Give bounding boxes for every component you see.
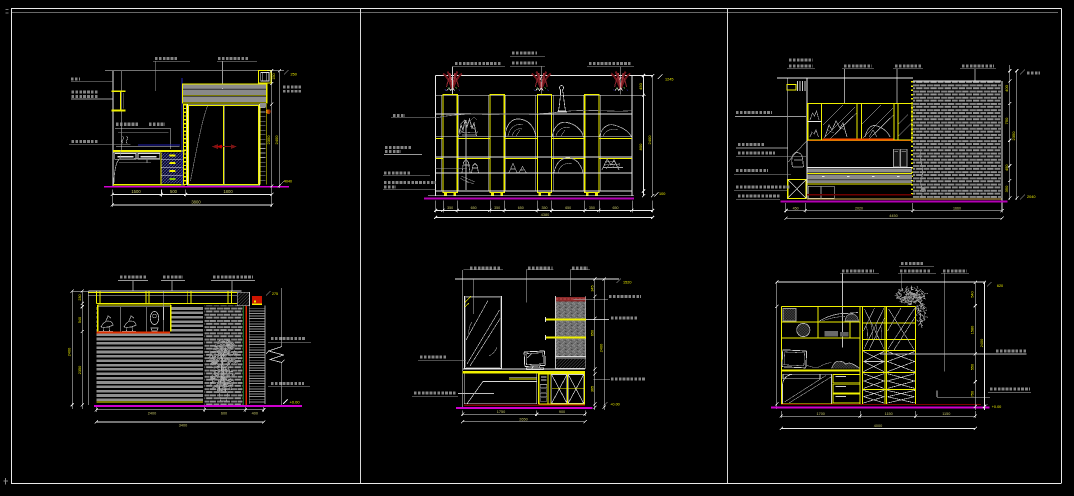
- svg-text:350: 350: [494, 206, 500, 210]
- svg-text:1150: 1150: [885, 412, 893, 416]
- svg-text:1520: 1520: [623, 281, 631, 285]
- svg-text:230: 230: [78, 294, 82, 300]
- svg-text:750: 750: [971, 391, 975, 397]
- svg-text:365: 365: [590, 386, 594, 392]
- svg-text:2350: 2350: [266, 135, 271, 145]
- svg-text:540: 540: [78, 317, 82, 323]
- svg-text:2400: 2400: [980, 339, 984, 347]
- svg-text:650: 650: [471, 206, 477, 210]
- svg-text:250: 250: [291, 73, 297, 77]
- svg-text:2400: 2400: [148, 412, 156, 416]
- svg-text:100: 100: [659, 192, 665, 196]
- svg-text:+0.00: +0.00: [289, 399, 300, 404]
- svg-text:400: 400: [1004, 84, 1009, 91]
- svg-text:2400: 2400: [274, 135, 279, 145]
- svg-text:+0.00: +0.00: [610, 403, 620, 407]
- svg-text:1150: 1150: [942, 412, 950, 416]
- svg-text:1660: 1660: [953, 206, 961, 210]
- svg-text:3400: 3400: [179, 424, 187, 428]
- svg-text:+0.00: +0.00: [992, 405, 1002, 409]
- svg-text:500: 500: [170, 189, 178, 194]
- svg-text:650: 650: [590, 330, 594, 336]
- svg-text:4380: 4380: [541, 213, 549, 217]
- svg-text:350: 350: [542, 206, 548, 210]
- svg-text:4040: 4040: [284, 180, 292, 184]
- svg-text:450: 450: [793, 206, 799, 210]
- svg-text:4000: 4000: [874, 424, 882, 428]
- svg-text:2350: 2350: [1011, 131, 1016, 141]
- svg-text:2400: 2400: [647, 135, 652, 145]
- svg-text:450: 450: [1004, 164, 1009, 171]
- svg-text:150: 150: [272, 73, 276, 79]
- svg-text:650: 650: [565, 206, 571, 210]
- svg-text:350: 350: [447, 206, 453, 210]
- svg-text:400: 400: [252, 412, 258, 416]
- svg-text:2020: 2020: [855, 206, 863, 210]
- svg-text:2350: 2350: [78, 366, 82, 374]
- svg-text:540: 540: [971, 291, 975, 297]
- svg-text:275: 275: [272, 292, 278, 296]
- svg-text:900: 900: [559, 410, 565, 414]
- svg-text:1245: 1245: [665, 78, 673, 82]
- svg-text:1750: 1750: [497, 410, 505, 414]
- svg-text:345: 345: [590, 285, 594, 291]
- svg-text:350: 350: [1004, 185, 1009, 192]
- svg-text:1500: 1500: [131, 189, 141, 194]
- svg-text:2400: 2400: [600, 344, 604, 352]
- svg-text:800: 800: [638, 143, 643, 150]
- svg-text:750: 750: [1004, 117, 1009, 124]
- svg-text:620: 620: [997, 284, 1003, 288]
- svg-text:1580: 1580: [971, 326, 975, 334]
- svg-text:450: 450: [638, 82, 643, 89]
- svg-text:2650: 2650: [519, 417, 527, 421]
- svg-text:650: 650: [518, 206, 524, 210]
- svg-text:650: 650: [613, 206, 619, 210]
- svg-text:350: 350: [589, 206, 595, 210]
- svg-text:550: 550: [971, 364, 975, 370]
- svg-text:600: 600: [221, 412, 227, 416]
- svg-text:1800: 1800: [223, 189, 233, 194]
- svg-text:3800: 3800: [191, 200, 201, 205]
- svg-text:1700: 1700: [816, 412, 824, 416]
- svg-text:4450: 4450: [889, 214, 897, 218]
- svg-text:2040: 2040: [1027, 195, 1035, 199]
- svg-text:2400: 2400: [68, 348, 72, 356]
